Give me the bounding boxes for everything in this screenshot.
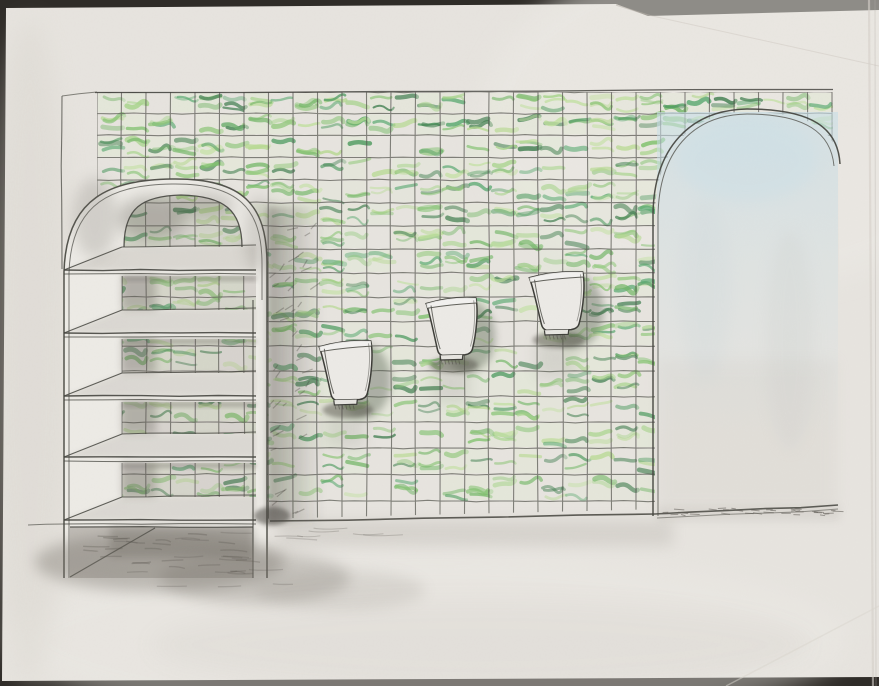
sketch-photo	[0, 0, 879, 686]
sketch-svg	[0, 0, 879, 686]
paper-texture	[0, 0, 879, 686]
